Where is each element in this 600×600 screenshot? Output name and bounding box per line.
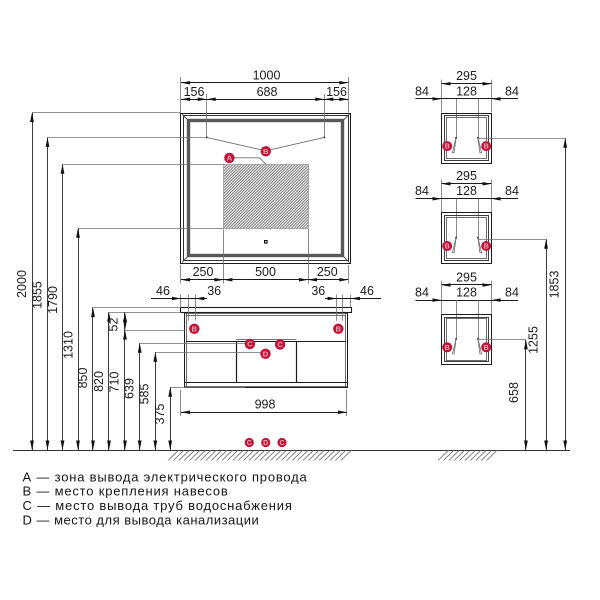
svg-text:D: D bbox=[263, 349, 269, 358]
svg-text:375: 375 bbox=[153, 404, 167, 425]
svg-text:C: C bbox=[247, 340, 253, 349]
svg-text:B: B bbox=[263, 147, 269, 156]
svg-text:А — зона вывода электрического: А — зона вывода электрического провода bbox=[23, 469, 308, 484]
svg-text:B: B bbox=[484, 242, 489, 251]
svg-text:84: 84 bbox=[415, 84, 429, 98]
svg-text:128: 128 bbox=[456, 184, 477, 198]
svg-text:B: B bbox=[445, 343, 450, 352]
svg-text:1853: 1853 bbox=[548, 271, 562, 299]
svg-text:36: 36 bbox=[311, 284, 325, 298]
svg-text:D — место для вывода канализац: D — место для вывода канализации bbox=[23, 512, 260, 527]
svg-text:688: 688 bbox=[257, 85, 278, 99]
svg-text:1255: 1255 bbox=[527, 326, 541, 354]
svg-text:820: 820 bbox=[92, 371, 106, 392]
svg-text:1790: 1790 bbox=[46, 286, 60, 314]
svg-text:250: 250 bbox=[317, 265, 338, 279]
svg-text:850: 850 bbox=[76, 368, 90, 389]
svg-text:500: 500 bbox=[255, 265, 276, 279]
svg-text:2000: 2000 bbox=[15, 270, 29, 298]
svg-text:B: B bbox=[336, 324, 342, 333]
svg-text:B: B bbox=[445, 142, 450, 151]
svg-text:585: 585 bbox=[138, 384, 152, 405]
svg-text:C: C bbox=[279, 440, 284, 447]
svg-text:84: 84 bbox=[415, 286, 429, 300]
svg-text:84: 84 bbox=[505, 184, 519, 198]
svg-text:250: 250 bbox=[193, 265, 214, 279]
svg-text:1310: 1310 bbox=[62, 331, 76, 359]
svg-text:C: C bbox=[277, 340, 283, 349]
svg-text:1000: 1000 bbox=[253, 68, 281, 82]
svg-text:658: 658 bbox=[507, 382, 521, 403]
svg-text:B: B bbox=[484, 142, 489, 151]
svg-text:84: 84 bbox=[415, 184, 429, 198]
svg-text:156: 156 bbox=[326, 85, 347, 99]
svg-text:В — место крепления навесов: В — место крепления навесов bbox=[23, 484, 229, 499]
svg-text:710: 710 bbox=[108, 372, 122, 393]
svg-text:128: 128 bbox=[456, 286, 477, 300]
svg-text:84: 84 bbox=[505, 84, 519, 98]
svg-text:295: 295 bbox=[456, 169, 477, 183]
svg-text:D: D bbox=[263, 440, 268, 447]
svg-text:B: B bbox=[445, 242, 450, 251]
svg-text:A: A bbox=[227, 154, 233, 163]
svg-text:156: 156 bbox=[184, 85, 205, 99]
svg-text:46: 46 bbox=[360, 284, 374, 298]
svg-text:295: 295 bbox=[456, 69, 477, 83]
svg-text:36: 36 bbox=[207, 284, 221, 298]
svg-text:998: 998 bbox=[255, 397, 276, 411]
svg-text:C: C bbox=[247, 440, 252, 447]
svg-text:84: 84 bbox=[505, 286, 519, 300]
svg-text:1855: 1855 bbox=[31, 281, 45, 309]
svg-text:639: 639 bbox=[122, 378, 136, 399]
svg-text:B: B bbox=[192, 324, 198, 333]
svg-text:295: 295 bbox=[456, 270, 477, 284]
svg-text:B: B bbox=[484, 343, 489, 352]
svg-text:52: 52 bbox=[107, 318, 121, 332]
svg-text:С — место вывода труб водоснаб: С — место вывода труб водоснабжения bbox=[23, 498, 293, 513]
svg-text:128: 128 bbox=[456, 84, 477, 98]
svg-text:46: 46 bbox=[156, 284, 170, 298]
